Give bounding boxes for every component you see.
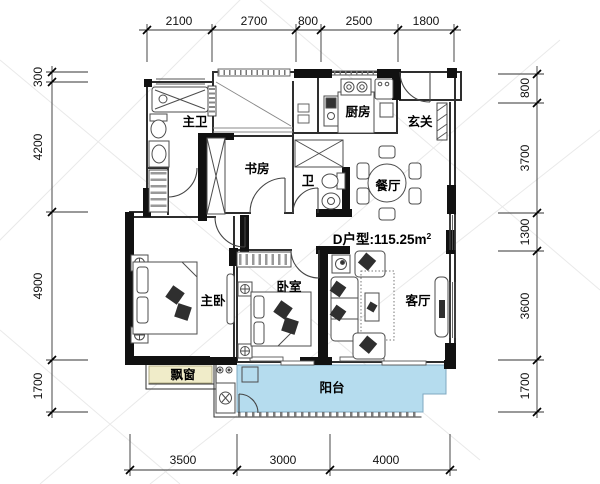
foyer-column — [437, 103, 447, 140]
dim-line-left — [46, 66, 88, 418]
room-label-kitchen: 厨房 — [345, 104, 370, 119]
dim-left-1700: 1700 — [31, 372, 45, 399]
master-bath-door — [168, 168, 197, 197]
dim-bottom-3500: 3500 — [170, 453, 197, 467]
room-label-bath: 卫 — [302, 174, 315, 188]
dim-left-4900: 4900 — [31, 272, 45, 299]
shaft-fixtures — [298, 104, 309, 123]
dim-left-4200: 4200 — [31, 133, 45, 160]
dim-top-800: 800 — [298, 14, 318, 28]
room-label-bedroom: 卧室 — [276, 279, 302, 294]
bedroom-door — [291, 250, 319, 278]
dim-top-2700: 2700 — [241, 14, 268, 28]
study-door — [250, 178, 285, 213]
dim-line-top — [139, 24, 461, 62]
room-label-balcony: 阳台 — [319, 380, 344, 395]
dim-right-1300: 1300 — [518, 218, 532, 245]
floor-plan: 2100 2700 800 2500 1800 300 4200 4900 17… — [0, 0, 600, 484]
bedroom-sliding-door — [250, 357, 283, 361]
room-label-living: 客厅 — [404, 293, 431, 308]
unit-type-label: D户型:115.25m2 — [333, 231, 432, 247]
room-label-study: 书房 — [244, 161, 269, 176]
entry-door — [400, 72, 430, 102]
dim-top-2500: 2500 — [346, 14, 373, 28]
dim-right-800: 800 — [518, 78, 532, 98]
floor-plan-svg: 2100 2700 800 2500 1800 300 4200 4900 17… — [0, 0, 600, 484]
room-label-bay-window: 飘窗 — [170, 367, 195, 382]
dim-right-3700: 3700 — [518, 144, 532, 171]
dim-top-2100: 2100 — [166, 14, 193, 28]
bath-door — [293, 188, 318, 213]
dim-bottom-3000: 3000 — [270, 453, 297, 467]
room-label-foyer: 玄关 — [407, 114, 433, 129]
room-label-master-bedroom: 主卧 — [200, 293, 226, 308]
room-label-dining: 餐厅 — [374, 178, 401, 193]
dim-right-1700: 1700 — [518, 372, 532, 399]
room-label-master-bath: 主卫 — [182, 114, 208, 129]
dim-bottom-4000: 4000 — [373, 453, 400, 467]
dim-left-300: 300 — [31, 67, 45, 87]
dim-right-3600: 3600 — [518, 292, 532, 319]
study-closet — [207, 138, 225, 214]
bedroom-furniture — [237, 252, 311, 358]
dim-top-1800: 1800 — [413, 14, 440, 28]
